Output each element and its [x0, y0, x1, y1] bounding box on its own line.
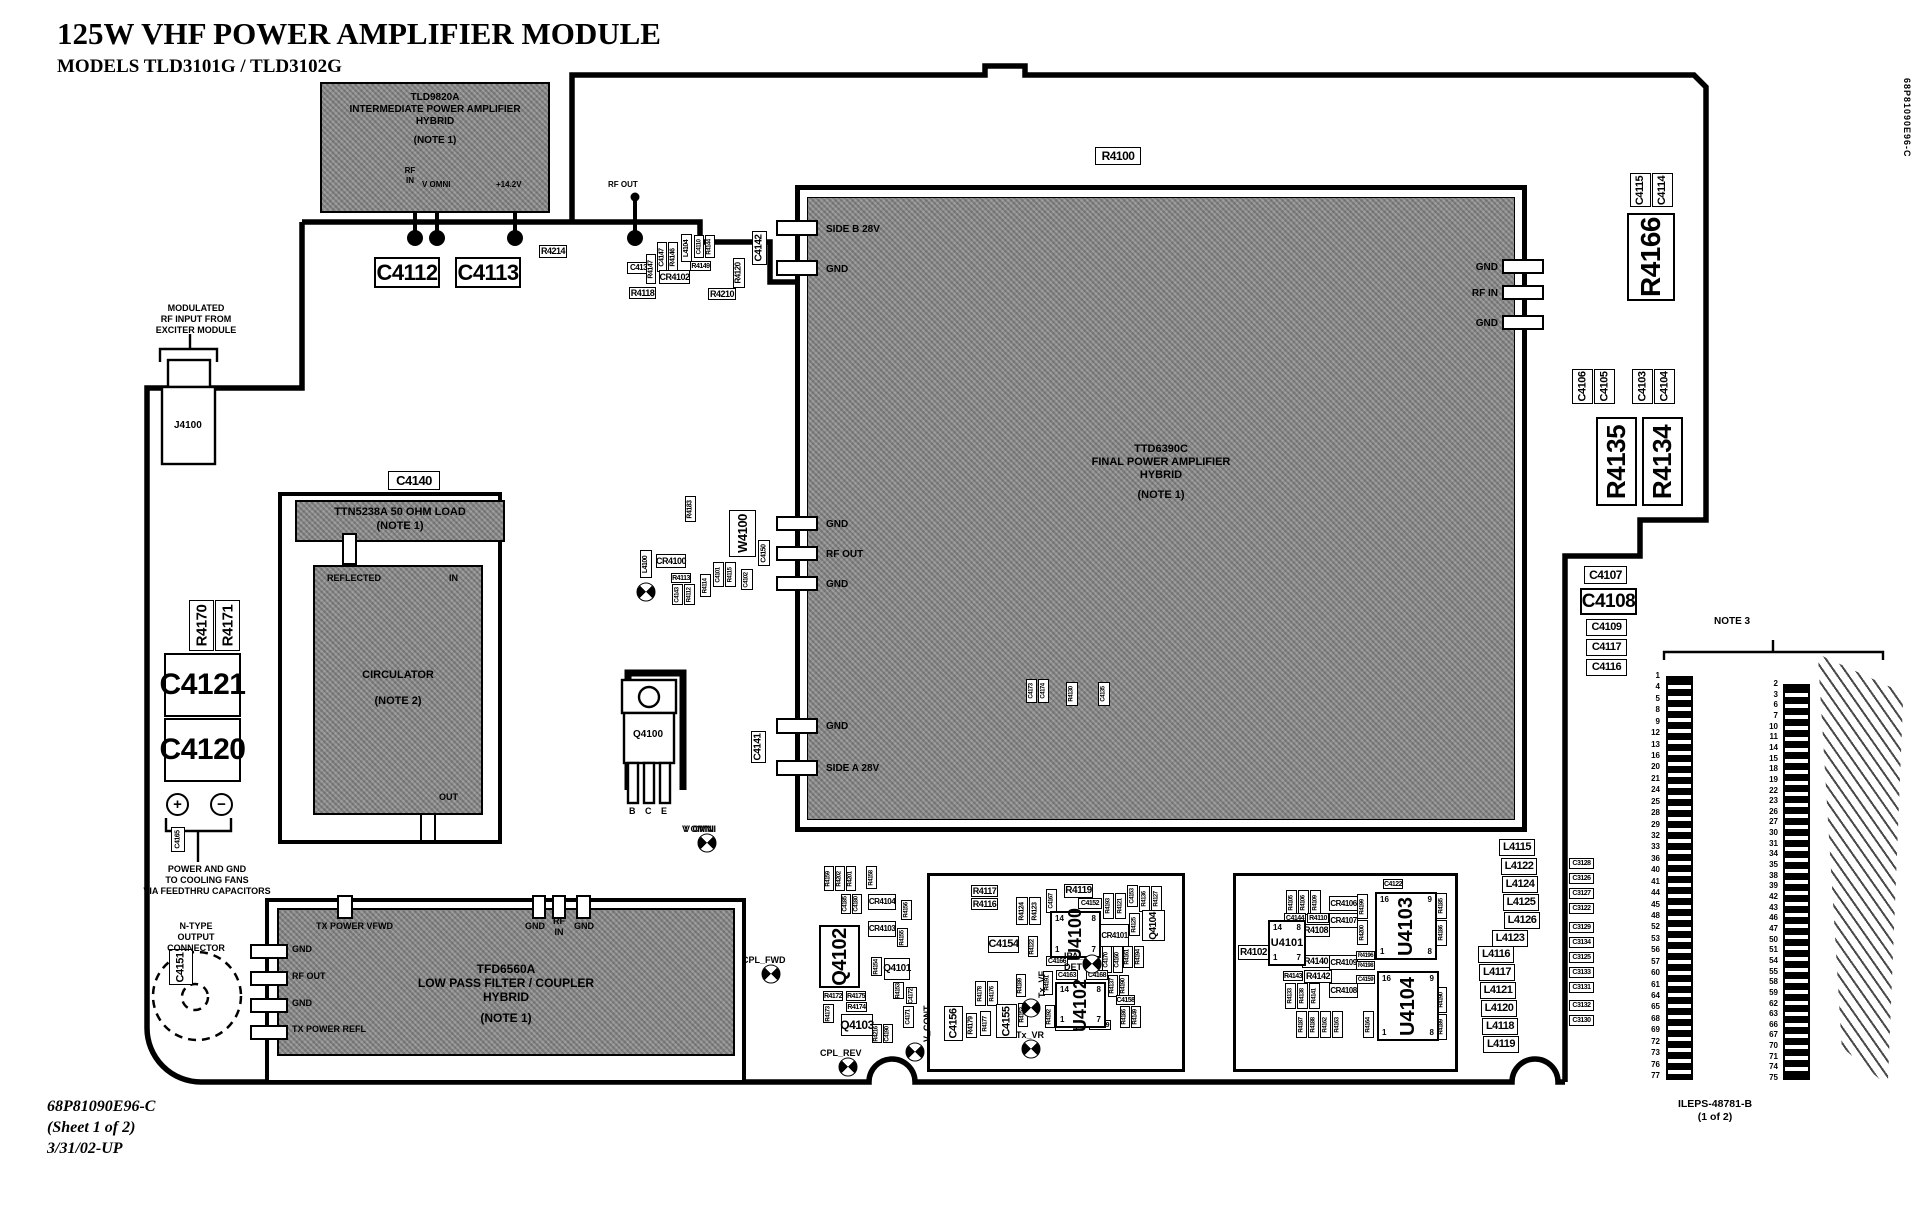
pin-number-right-15: 15 [1752, 755, 1778, 763]
part-r4183: R4183 [685, 496, 696, 522]
pin-number-left-12: 12 [1634, 729, 1660, 737]
part-r4134: R4134 [1642, 417, 1683, 506]
pin-number-right-42: 42 [1752, 893, 1778, 901]
part-c4113: C4113 [455, 257, 521, 288]
part-c4122: C4122 [1383, 879, 1403, 889]
part-r4109: R4109 [1310, 890, 1321, 915]
part-r4187: R4187 [1296, 1011, 1307, 1038]
part-c4120: C4120 [164, 718, 241, 782]
pin-number-right-19: 19 [1752, 776, 1778, 784]
label-q4100: Q4100 [633, 729, 663, 741]
label-side-a-28v: SIDE A 28V [826, 763, 879, 775]
pin-number-left-61: 61 [1634, 981, 1660, 989]
part-r4118: R4118 [629, 287, 656, 299]
part-c4150: C4150 [758, 540, 770, 566]
part-c4114: C4114 [1652, 173, 1673, 207]
pin-number-right-6: 6 [1752, 701, 1778, 709]
part-c4185: C4185 [841, 894, 851, 914]
part-r4190: R4190 [1119, 975, 1129, 997]
pad-9 [1502, 315, 1544, 330]
pad-11 [532, 895, 546, 919]
pin-number-left-60: 60 [1634, 969, 1660, 977]
part-c4170: C4170 [1102, 946, 1112, 973]
pad-16 [250, 998, 288, 1013]
label-gnd: GND [292, 998, 312, 1009]
part-r4214: R4214 [539, 245, 567, 258]
label-gnd: GND [525, 921, 545, 932]
part-cr4101: CR4101 [1100, 924, 1129, 947]
label-rf-out: RF OUT [292, 971, 326, 982]
pin-number-left-48: 48 [1634, 912, 1660, 920]
part-c4102: C4102 [741, 569, 753, 590]
part-r4149: R4149 [1131, 1006, 1141, 1028]
pin-number-left-16: 16 [1634, 752, 1660, 760]
part-l4126: L4126 [1504, 912, 1540, 929]
part-c4159: C4159 [1356, 975, 1375, 984]
label-b: B [629, 806, 636, 817]
part-c4147: C4147 [657, 242, 667, 272]
part-q4103: Q4103 [841, 1014, 873, 1036]
pin-number-right-66: 66 [1752, 1021, 1778, 1029]
test-point-label-3: CPL_REV [820, 1048, 862, 1059]
part-l4118: L4118 [1482, 1018, 1518, 1035]
part-r4185: R4185 [1436, 893, 1447, 919]
pin-number-left-72: 72 [1634, 1038, 1660, 1046]
label-tx-power-vfwd: TX POWER VFWD [316, 921, 393, 932]
pin-number-right-18: 18 [1752, 765, 1778, 773]
part-r4102: R4102 [1238, 945, 1269, 960]
pin-number-right-62: 62 [1752, 1000, 1778, 1008]
part-r4170: R4170 [189, 600, 214, 651]
part-c4153: C4153 [1127, 885, 1138, 907]
pin-number-right-2: 2 [1752, 680, 1778, 688]
label-modulated: MODULATED RF INPUT FROM EXCITER MODULE [148, 303, 244, 335]
pin-number-left-8: 8 [1634, 706, 1660, 714]
pin-number-left-33: 33 [1634, 843, 1660, 851]
label-gnd: GND [826, 721, 848, 733]
pin-number-left-68: 68 [1634, 1015, 1660, 1023]
part-c3132: C3132 [1569, 1000, 1594, 1011]
part-r4186: R4186 [1436, 920, 1447, 946]
pad-15 [250, 971, 288, 986]
pin-number-right-59: 59 [1752, 989, 1778, 997]
part-c4172: C4172 [906, 987, 917, 1004]
part-c4103: C4103 [1632, 369, 1653, 404]
pin-number-right-26: 26 [1752, 808, 1778, 816]
part-r4108: R4108 [1302, 924, 1330, 937]
part-c4116: C4116 [1586, 659, 1627, 676]
part-c3126: C3126 [1569, 873, 1594, 884]
pin-number-left-5: 5 [1634, 695, 1660, 703]
part-r4106: R4106 [1298, 890, 1309, 915]
minus-terminal: − [210, 793, 233, 816]
part-r4202: R4202 [835, 866, 845, 891]
part-cr4106: CR4106 [1329, 896, 1358, 911]
pad-3 [776, 546, 818, 561]
part-c4156: C4156 [944, 1006, 963, 1041]
pin-number-left-57: 57 [1634, 958, 1660, 966]
part-c3134: C3134 [1569, 937, 1594, 948]
part-c4121: C4121 [164, 653, 241, 717]
pin-number-right-67: 67 [1752, 1031, 1778, 1039]
part-c4190: C4190 [883, 1024, 893, 1043]
part-l4125: L4125 [1503, 894, 1539, 911]
part-cr4107: CR4107 [1329, 913, 1358, 928]
pin-number-right-70: 70 [1752, 1042, 1778, 1050]
part-l4117: L4117 [1479, 964, 1515, 981]
part-r4149: R4149 [690, 261, 711, 271]
part-c4165: C4165 [171, 827, 185, 852]
label-rf-out: RF OUT [826, 549, 863, 561]
part-c4108: C4108 [1580, 588, 1637, 615]
part-l4123: L4123 [1492, 930, 1528, 947]
pad-7 [1502, 259, 1544, 274]
part-r4119: R4119 [1064, 884, 1093, 898]
part-c4112: C4112 [374, 257, 440, 288]
part-r4114: R4114 [700, 574, 711, 597]
pin-number-left-69: 69 [1634, 1026, 1660, 1034]
pin-number-left-45: 45 [1634, 901, 1660, 909]
part-cr4100: CR4100 [656, 554, 686, 568]
pad-19 [420, 813, 436, 842]
pin-number-left-13: 13 [1634, 741, 1660, 749]
pad-1 [776, 260, 818, 276]
part-r4123: R4123 [1029, 897, 1041, 925]
part-c4141: C4141 [751, 731, 766, 763]
part-c3133: C3133 [1569, 967, 1594, 978]
pad-14 [250, 944, 288, 959]
test-point-label-6: Tx_VF [1037, 971, 1048, 998]
part-r4141: R4141 [1309, 983, 1320, 1009]
part-r4210: R4210 [708, 288, 736, 300]
part-r4158: R4158 [866, 866, 877, 889]
generated-layer: R4100C4112C4113R4214C4137R4147C4147R4146… [0, 0, 1920, 1208]
part-l4116: L4116 [1478, 946, 1514, 963]
pin-number-left-65: 65 [1634, 1003, 1660, 1011]
label-j4100: J4100 [174, 420, 202, 432]
part-l4121: L4121 [1480, 982, 1516, 999]
part-r4110: R4110 [1307, 913, 1329, 923]
pin-number-left-64: 64 [1634, 992, 1660, 1000]
part-r4164: R4164 [1363, 1011, 1374, 1038]
part-r4140: R4140 [1302, 955, 1330, 968]
label-gnd: GND [826, 579, 848, 591]
pcb-layout-diagram: 125W VHF POWER AMPLIFIER MODULE MODELS T… [0, 0, 1920, 1208]
part-r4188: R4188 [1308, 1011, 1319, 1038]
part-c4154: C4154 [988, 936, 1019, 953]
ic-u4102: U410214817 [1055, 982, 1106, 1028]
connector-footer: ILEPS-48781-B (1 of 2) [1655, 1098, 1775, 1124]
side-edge-text: 68P81090E96-C [1902, 78, 1912, 158]
part-r4146: R4146 [668, 242, 678, 272]
test-point-label-5: IPA_ DET [1064, 951, 1083, 973]
pin-number-left-1: 1 [1634, 672, 1660, 680]
part-r4113: R4113 [671, 573, 691, 583]
ic-u4101: U410114817 [1268, 920, 1306, 966]
part-r4179: R4179 [966, 1013, 977, 1038]
part-l4124: L4124 [1502, 876, 1538, 893]
part-c4180: C4180 [852, 894, 862, 914]
part-cr4103: CR4103 [868, 921, 896, 937]
part-c4151: C4151 [169, 949, 193, 985]
part-c4106: C4106 [1572, 369, 1593, 404]
page-subtitle: MODELS TLD3101G / TLD3102G [57, 56, 342, 78]
part-r4161: R4161 [1123, 946, 1133, 968]
pin-number-left-40: 40 [1634, 866, 1660, 874]
pin-number-right-3: 3 [1752, 691, 1778, 699]
part-r4154: R4154 [871, 957, 882, 976]
part-cr4109: CR4109 [1329, 955, 1358, 970]
pin-number-left-73: 73 [1634, 1049, 1660, 1057]
ic-u4104: U410416918 [1377, 971, 1439, 1041]
pin-number-right-55: 55 [1752, 968, 1778, 976]
pin-number-right-22: 22 [1752, 787, 1778, 795]
part-l4104: L4104 [681, 234, 692, 262]
part-cr4104: CR4104 [868, 894, 896, 910]
part-c3130: C3130 [1569, 1015, 1594, 1026]
part-c4140: C4140 [388, 471, 440, 490]
part-r4130: R4130 [1066, 682, 1078, 706]
part-c4158: C4158 [1116, 995, 1135, 1005]
part-c4171: C4171 [903, 1006, 914, 1028]
part-r4194: R4194 [1134, 946, 1144, 968]
part-r4127: R4127 [1151, 886, 1162, 912]
pin-number-left-9: 9 [1634, 718, 1660, 726]
part-l4115: L4115 [1499, 839, 1535, 856]
pin-number-right-43: 43 [1752, 904, 1778, 912]
part-r4189: R4189 [1016, 974, 1026, 997]
pin-number-right-71: 71 [1752, 1053, 1778, 1061]
note3-label: NOTE 3 [1714, 616, 1834, 627]
part-q4101: Q4101 [884, 958, 910, 980]
pin-number-right-38: 38 [1752, 872, 1778, 880]
part-cr4108: CR4108 [1329, 983, 1358, 998]
label-n-type: N-TYPE OUTPUT CONNECTOR [148, 921, 244, 953]
label-reflected: REFLECTED [327, 573, 381, 584]
part-r4105: R4105 [1286, 890, 1297, 915]
label-tx-power-refl: TX POWER REFL [292, 1024, 366, 1035]
part-r4112: R4112 [684, 584, 695, 605]
label-rf: RF IN [551, 916, 567, 938]
pin-number-left-29: 29 [1634, 821, 1660, 829]
pin-number-left-32: 32 [1634, 832, 1660, 840]
pin-number-left-77: 77 [1634, 1072, 1660, 1080]
part-c4160: C4160 [1113, 946, 1123, 973]
plus-terminal: + [166, 793, 189, 816]
part-c3131: C3131 [1569, 982, 1594, 993]
page-title: 125W VHF POWER AMPLIFIER MODULE [57, 16, 661, 52]
part-r4162: R4162 [1320, 1011, 1331, 1038]
part-r4122: R4122 [1028, 936, 1038, 957]
test-point-label-2: CPL_FWD [742, 955, 786, 966]
label-c: C [645, 806, 652, 817]
pad-13 [576, 895, 591, 919]
part-r4156: R4156 [901, 900, 912, 920]
part-c3125: C3125 [1569, 952, 1594, 963]
part-c3127: C3127 [1569, 888, 1594, 899]
pin-number-right-7: 7 [1752, 712, 1778, 720]
pin-number-left-41: 41 [1634, 878, 1660, 886]
part-c3122: C3122 [1569, 903, 1594, 914]
label-+14-2v: +14.2V [496, 180, 522, 190]
part-r4153: R4153 [893, 982, 904, 999]
label-power-and-gnd: POWER AND GND TO COOLING FANS VIA FEEDTH… [127, 864, 287, 896]
part-c4117: C4117 [1586, 639, 1627, 656]
part-r4143: R4143 [1283, 971, 1303, 981]
pin-number-left-24: 24 [1634, 786, 1660, 794]
pin-number-right-23: 23 [1752, 797, 1778, 805]
part-c4110: C4110 [694, 235, 704, 258]
ic-u4103: U410316918 [1375, 892, 1437, 960]
label-gnd: GND [1476, 262, 1498, 274]
pin-number-left-56: 56 [1634, 946, 1660, 954]
pin-number-right-39: 39 [1752, 882, 1778, 890]
pin-number-right-54: 54 [1752, 957, 1778, 965]
label-v-omni: V OMNI [422, 180, 450, 190]
label-e: E [661, 806, 667, 817]
pin-number-right-14: 14 [1752, 744, 1778, 752]
pad-18 [342, 533, 357, 565]
part-c3129: C3129 [1569, 922, 1594, 933]
part-r4147: R4147 [646, 254, 656, 284]
part-c4173: C4173 [1026, 679, 1037, 703]
part-r4117: R4117 [971, 885, 998, 897]
part-r4136: R4136 [1139, 886, 1150, 912]
pin-number-right-47: 47 [1752, 925, 1778, 933]
pad-17 [250, 1025, 288, 1040]
part-cr4102: CR4102 [659, 270, 690, 284]
part-r4201: R4201 [846, 866, 856, 891]
pin-number-left-4: 4 [1634, 683, 1660, 691]
label-rf-out: RF OUT [608, 180, 638, 190]
part-r4166: R4166 [1627, 213, 1675, 301]
part-c4105: C4105 [1594, 369, 1615, 404]
pin-number-left-52: 52 [1634, 923, 1660, 931]
test-point-v-cont [902, 1039, 929, 1066]
part-r4199: R4199 [1357, 894, 1368, 919]
pin-number-right-34: 34 [1752, 850, 1778, 858]
pad-0 [776, 220, 818, 236]
label-rf: RF IN [400, 166, 420, 185]
part-r4100: R4100 [1095, 147, 1141, 165]
part-c4143: C4143 [672, 584, 683, 605]
pin-number-right-10: 10 [1752, 723, 1778, 731]
pin-number-left-53: 53 [1634, 935, 1660, 943]
pin-number-right-46: 46 [1752, 914, 1778, 922]
part-r4196: R4196 [1356, 951, 1375, 960]
pin-number-right-75: 75 [1752, 1074, 1778, 1082]
pad-4 [776, 576, 818, 591]
part-r4125: R4125 [1129, 913, 1140, 936]
part-l4100: L4100 [640, 550, 652, 578]
pin-number-left-20: 20 [1634, 763, 1660, 771]
pin-number-right-51: 51 [1752, 946, 1778, 954]
test-point-label-4: V_CONT [922, 1005, 933, 1042]
part-c4142: C4142 [752, 231, 767, 265]
part-r4177: R4177 [980, 1011, 991, 1036]
part-r4124: R4124 [1016, 897, 1028, 925]
pin-number-left-28: 28 [1634, 809, 1660, 817]
part-c4135: C4135 [1098, 682, 1110, 706]
label-gnd: GND [826, 264, 848, 276]
part-r4155: R4155 [897, 928, 908, 947]
pin-number-left-44: 44 [1634, 889, 1660, 897]
part-r4171: R4171 [215, 600, 240, 651]
label-gnd: GND [292, 944, 312, 955]
part-r4173: R4173 [823, 1004, 834, 1023]
part-l4122: L4122 [1501, 858, 1537, 875]
part-r4175: R4175 [846, 991, 866, 1001]
part-r4120: R4120 [733, 258, 745, 288]
label-gnd: GND [1476, 318, 1498, 330]
part-q4102: Q4102 [819, 925, 860, 988]
part-r4172: R4172 [823, 991, 843, 1001]
part-r4115: R4115 [725, 562, 736, 587]
pad-6 [776, 760, 818, 776]
part-r4193: R4193 [1103, 893, 1114, 919]
part-w4100: W4100 [729, 510, 756, 557]
pin-number-right-63: 63 [1752, 1010, 1778, 1018]
pad-10 [337, 895, 353, 919]
pin-number-left-21: 21 [1634, 775, 1660, 783]
part-l4119: L4119 [1483, 1036, 1519, 1053]
pin-number-right-35: 35 [1752, 861, 1778, 869]
pin-number-left-76: 76 [1634, 1061, 1660, 1069]
part-r4137: R4137 [1108, 975, 1118, 997]
part-c4174: C4174 [1038, 679, 1049, 703]
pin-number-right-11: 11 [1752, 733, 1778, 741]
part-r4176: R4176 [987, 981, 998, 1006]
part-r4142: R4142 [1304, 970, 1332, 983]
pin-number-right-31: 31 [1752, 840, 1778, 848]
pin-number-right-58: 58 [1752, 978, 1778, 986]
document-footer: 68P81090E96-C (Sheet 1 of 2) 3/31/02-UP [47, 1096, 155, 1159]
part-c4101: C4101 [713, 562, 724, 587]
part-r4133: R4133 [1285, 983, 1296, 1009]
pin-number-left-36: 36 [1634, 855, 1660, 863]
label-out: OUT [439, 792, 458, 803]
pin-number-right-30: 30 [1752, 829, 1778, 837]
part-c4155: C4155 [996, 1004, 1017, 1038]
part-c4115: C4115 [1630, 173, 1651, 207]
pin-number-right-50: 50 [1752, 936, 1778, 944]
part-r4186: R4186 [1120, 1006, 1130, 1028]
part-r4135: R4135 [1596, 417, 1637, 506]
part-c4107: C4107 [1584, 566, 1627, 584]
pad-8 [1502, 285, 1544, 300]
part-c3128: C3128 [1569, 858, 1594, 869]
pin-number-right-27: 27 [1752, 818, 1778, 826]
label-gnd: GND [826, 519, 848, 531]
part-r4198: R4198 [1356, 961, 1375, 970]
part-r4192: R4192 [1045, 1005, 1055, 1028]
part-l4120: L4120 [1481, 1000, 1517, 1017]
part-r4200: R4200 [1357, 920, 1368, 945]
part-c4167: C4167 [1046, 889, 1057, 913]
part-c4104: C4104 [1654, 369, 1675, 404]
part-r4216: R4216 [872, 1024, 882, 1043]
part-q4104: Q4104 [1142, 910, 1165, 941]
label-side-b-28v: SIDE B 28V [826, 224, 880, 236]
part-r4159: R4159 [824, 866, 834, 891]
label-in: IN [449, 573, 458, 584]
test-point-0 [633, 579, 660, 606]
part-r4144: R4144 [705, 235, 715, 258]
pin-number-right-74: 74 [1752, 1063, 1778, 1071]
pad-5 [776, 718, 818, 734]
pin-number-left-25: 25 [1634, 798, 1660, 806]
part-c4109: C4109 [1586, 619, 1627, 636]
